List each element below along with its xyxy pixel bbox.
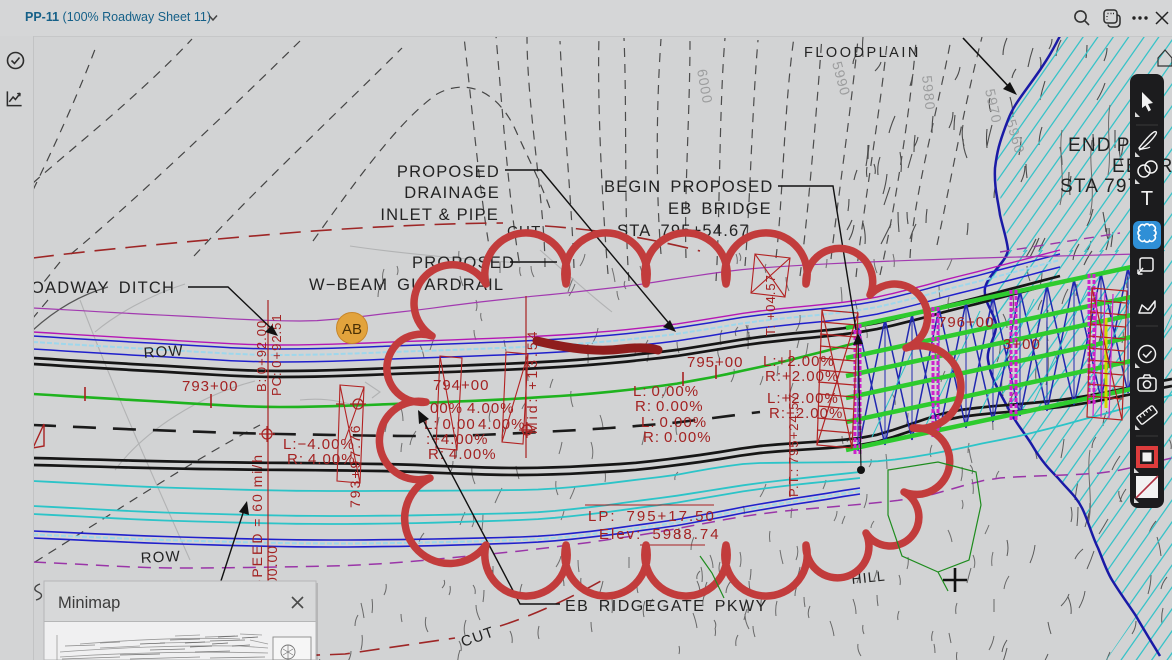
svg-text:R: 4.00%: R: 4.00%	[287, 451, 356, 468]
svg-text:INLET & PIPE: INLET & PIPE	[380, 206, 499, 224]
svg-text:00% 4.00%: 00% 4.00%	[430, 400, 515, 417]
svg-text:794+00: 794+00	[433, 377, 489, 394]
svg-text:SPEED = 60 mi/h: SPEED = 60 mi/h	[249, 453, 265, 589]
svg-text:796+00: 796+00	[938, 314, 994, 331]
svg-text:T: T	[1141, 188, 1153, 210]
svg-text:PROPOSED: PROPOSED	[397, 163, 500, 181]
svg-text:795+00: 795+00	[687, 354, 743, 371]
svg-text:DRAINAGE: DRAINAGE	[404, 184, 500, 202]
svg-text:EB RIDGEGATE PKWY: EB RIDGEGATE PKWY	[565, 598, 768, 615]
svg-text:3+00: 3+00	[1003, 336, 1041, 353]
svg-text:EB BRIDGE: EB BRIDGE	[668, 200, 772, 218]
svg-text:P.T.: 795+24.57: P.T.: 795+24.57	[786, 393, 801, 497]
svg-text:793+00: 793+00	[182, 378, 238, 395]
svg-text:ROW: ROW	[143, 342, 184, 362]
svg-text:Elev: 5988.74: Elev: 5988.74	[599, 526, 721, 543]
svg-text:Minimap: Minimap	[58, 594, 120, 612]
svg-text:AB: AB	[342, 321, 362, 338]
svg-text:FLOODPLAIN: FLOODPLAIN	[804, 45, 921, 61]
svg-text:R:+2.00%: R:+2.00%	[769, 405, 843, 422]
svg-text:T: +04.57: T: +04.57	[763, 274, 778, 336]
svg-text:LP: 795+17.50: LP: 795+17.50	[588, 508, 716, 525]
svg-text:R: 0.00%: R: 0.00%	[635, 398, 704, 415]
svg-text:793+97.76: 793+97.76	[347, 423, 363, 508]
svg-text:STA 797: STA 797	[1060, 176, 1139, 197]
svg-text:BEGIN PROPOSED: BEGIN PROPOSED	[604, 178, 773, 196]
svg-text:OADWAY DITCH: OADWAY DITCH	[31, 279, 175, 297]
svg-text:R:+2.00%: R:+2.00%	[765, 368, 839, 385]
svg-text:ROW: ROW	[140, 548, 181, 567]
svg-text:R: 0.00%: R: 0.00%	[643, 429, 712, 446]
svg-text:00.00: 00.00	[264, 545, 280, 585]
svg-text:W−BEAM GUARDRAIL: W−BEAM GUARDRAIL	[309, 276, 504, 294]
